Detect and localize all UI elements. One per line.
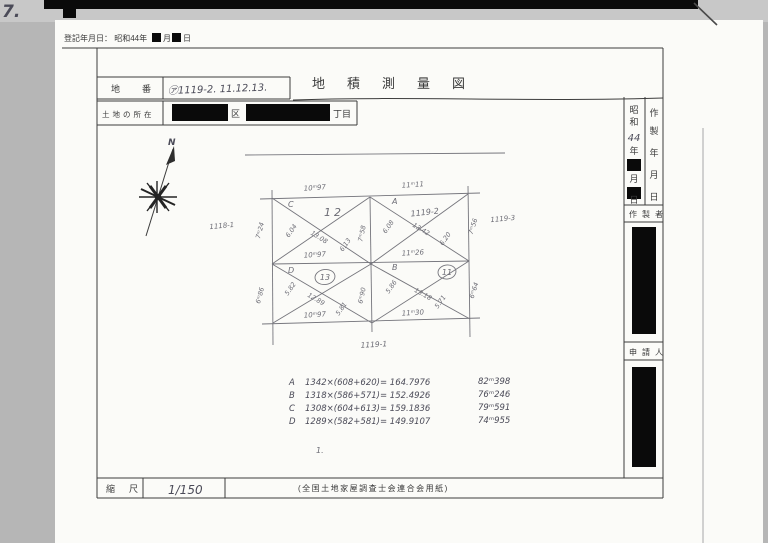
d-bottom-edge: 10ᵐ97 [304, 310, 327, 319]
scan-top-black-bar [44, 0, 698, 9]
location-chome-suffix: 丁目 [333, 109, 351, 119]
calc-row-letter: D [289, 417, 296, 427]
location-label: 土地の所在 [102, 109, 155, 119]
calc-row-area: 82ᵐ398 [478, 377, 511, 387]
calc-row-letter: A [288, 378, 295, 388]
made-label-char-4: 月 [649, 170, 658, 180]
applicant-label: 申請人 [629, 347, 668, 357]
calc-row-formula: 1308×(604+613)= 159.1836 [305, 404, 431, 414]
neighbor-lot-bottom: 1119-1 [360, 339, 387, 349]
made-label-char-3: 年 [649, 147, 658, 158]
a-top-edge: 11ᵐ11 [402, 180, 425, 190]
sidebar-era-char1: 昭 [629, 105, 638, 115]
maker-label: 作製者 [629, 209, 668, 219]
redaction-maker-name [632, 227, 656, 334]
redaction-ward-name [172, 104, 228, 121]
made-label-char-2: 製 [649, 125, 658, 136]
calc-row-area: 76ᵐ246 [478, 390, 511, 400]
sidebar-year-value: 44 [628, 133, 641, 144]
calc-row-letter: B [289, 391, 295, 401]
redaction-district-name [246, 104, 330, 121]
redaction-month [152, 33, 161, 42]
stray-mark: 1. [316, 446, 324, 455]
scale-value: 1/150 [168, 483, 203, 497]
parcel-c-number: 12 [324, 206, 344, 219]
calc-row-formula: 1342×(608+620)= 164.7976 [305, 378, 431, 388]
registration-month-suffix: 月 [163, 34, 171, 43]
registration-date-note: 登記年月日： 昭和44年 [64, 33, 147, 43]
location-ku-suffix: 区 [231, 109, 240, 119]
sidebar-day-suffix: 日 [629, 195, 638, 205]
svg-text:11: 11 [442, 268, 452, 277]
c-top-edge: 10ᵐ97 [304, 183, 327, 193]
calc-row-area: 74ᵐ955 [478, 416, 510, 426]
scanned-survey-document: 7. 登記年月日： 昭和44年 月 日 地番 ㋐1119-2. 11.12.13… [0, 0, 768, 543]
made-label-char-1: 作 [649, 107, 658, 118]
calc-row-formula: 1289×(582+581)= 149.9107 [305, 417, 431, 427]
parcel-b-letter: B [392, 263, 398, 272]
page-title: 地積測量図 [312, 76, 487, 91]
parcel-d-letter: D [288, 266, 294, 275]
parcel-a-letter: A [391, 197, 397, 206]
lot-label: 地番 [111, 83, 173, 94]
registration-day-suffix: 日 [183, 34, 191, 43]
redaction-day [172, 33, 181, 42]
redaction-applicant-name [632, 367, 656, 467]
calc-row-formula: 1318×(586+571)= 152.4926 [305, 391, 431, 401]
svg-text:13: 13 [320, 273, 330, 282]
a-bottom-edge: 11ᵐ26 [402, 248, 425, 257]
b-bottom-edge: 11ᵐ30 [402, 308, 425, 317]
scan-black-square [63, 7, 76, 18]
redaction-sidebar-month [627, 159, 641, 171]
paper-note: (全国土地家屋調査士会連合会用紙) [298, 483, 449, 493]
sidebar-era-char2: 和 [629, 117, 638, 127]
calc-row-letter: C [289, 404, 295, 414]
sidebar-month-suffix: 月 [629, 174, 638, 184]
corner-mark: 7. [2, 2, 20, 22]
calc-row-area: 79ᵐ591 [478, 403, 510, 413]
scale-label: 縮尺 [106, 483, 152, 494]
parcel-c-letter: C [288, 200, 294, 209]
made-label-char-5: 日 [649, 192, 658, 202]
document-svg: 7. 登記年月日： 昭和44年 月 日 地番 ㋐1119-2. 11.12.13… [0, 0, 768, 543]
c-bottom-edge: 10ᵐ97 [304, 250, 327, 259]
north-label: N [168, 138, 176, 148]
sidebar-year-suffix: 年 [629, 145, 638, 156]
